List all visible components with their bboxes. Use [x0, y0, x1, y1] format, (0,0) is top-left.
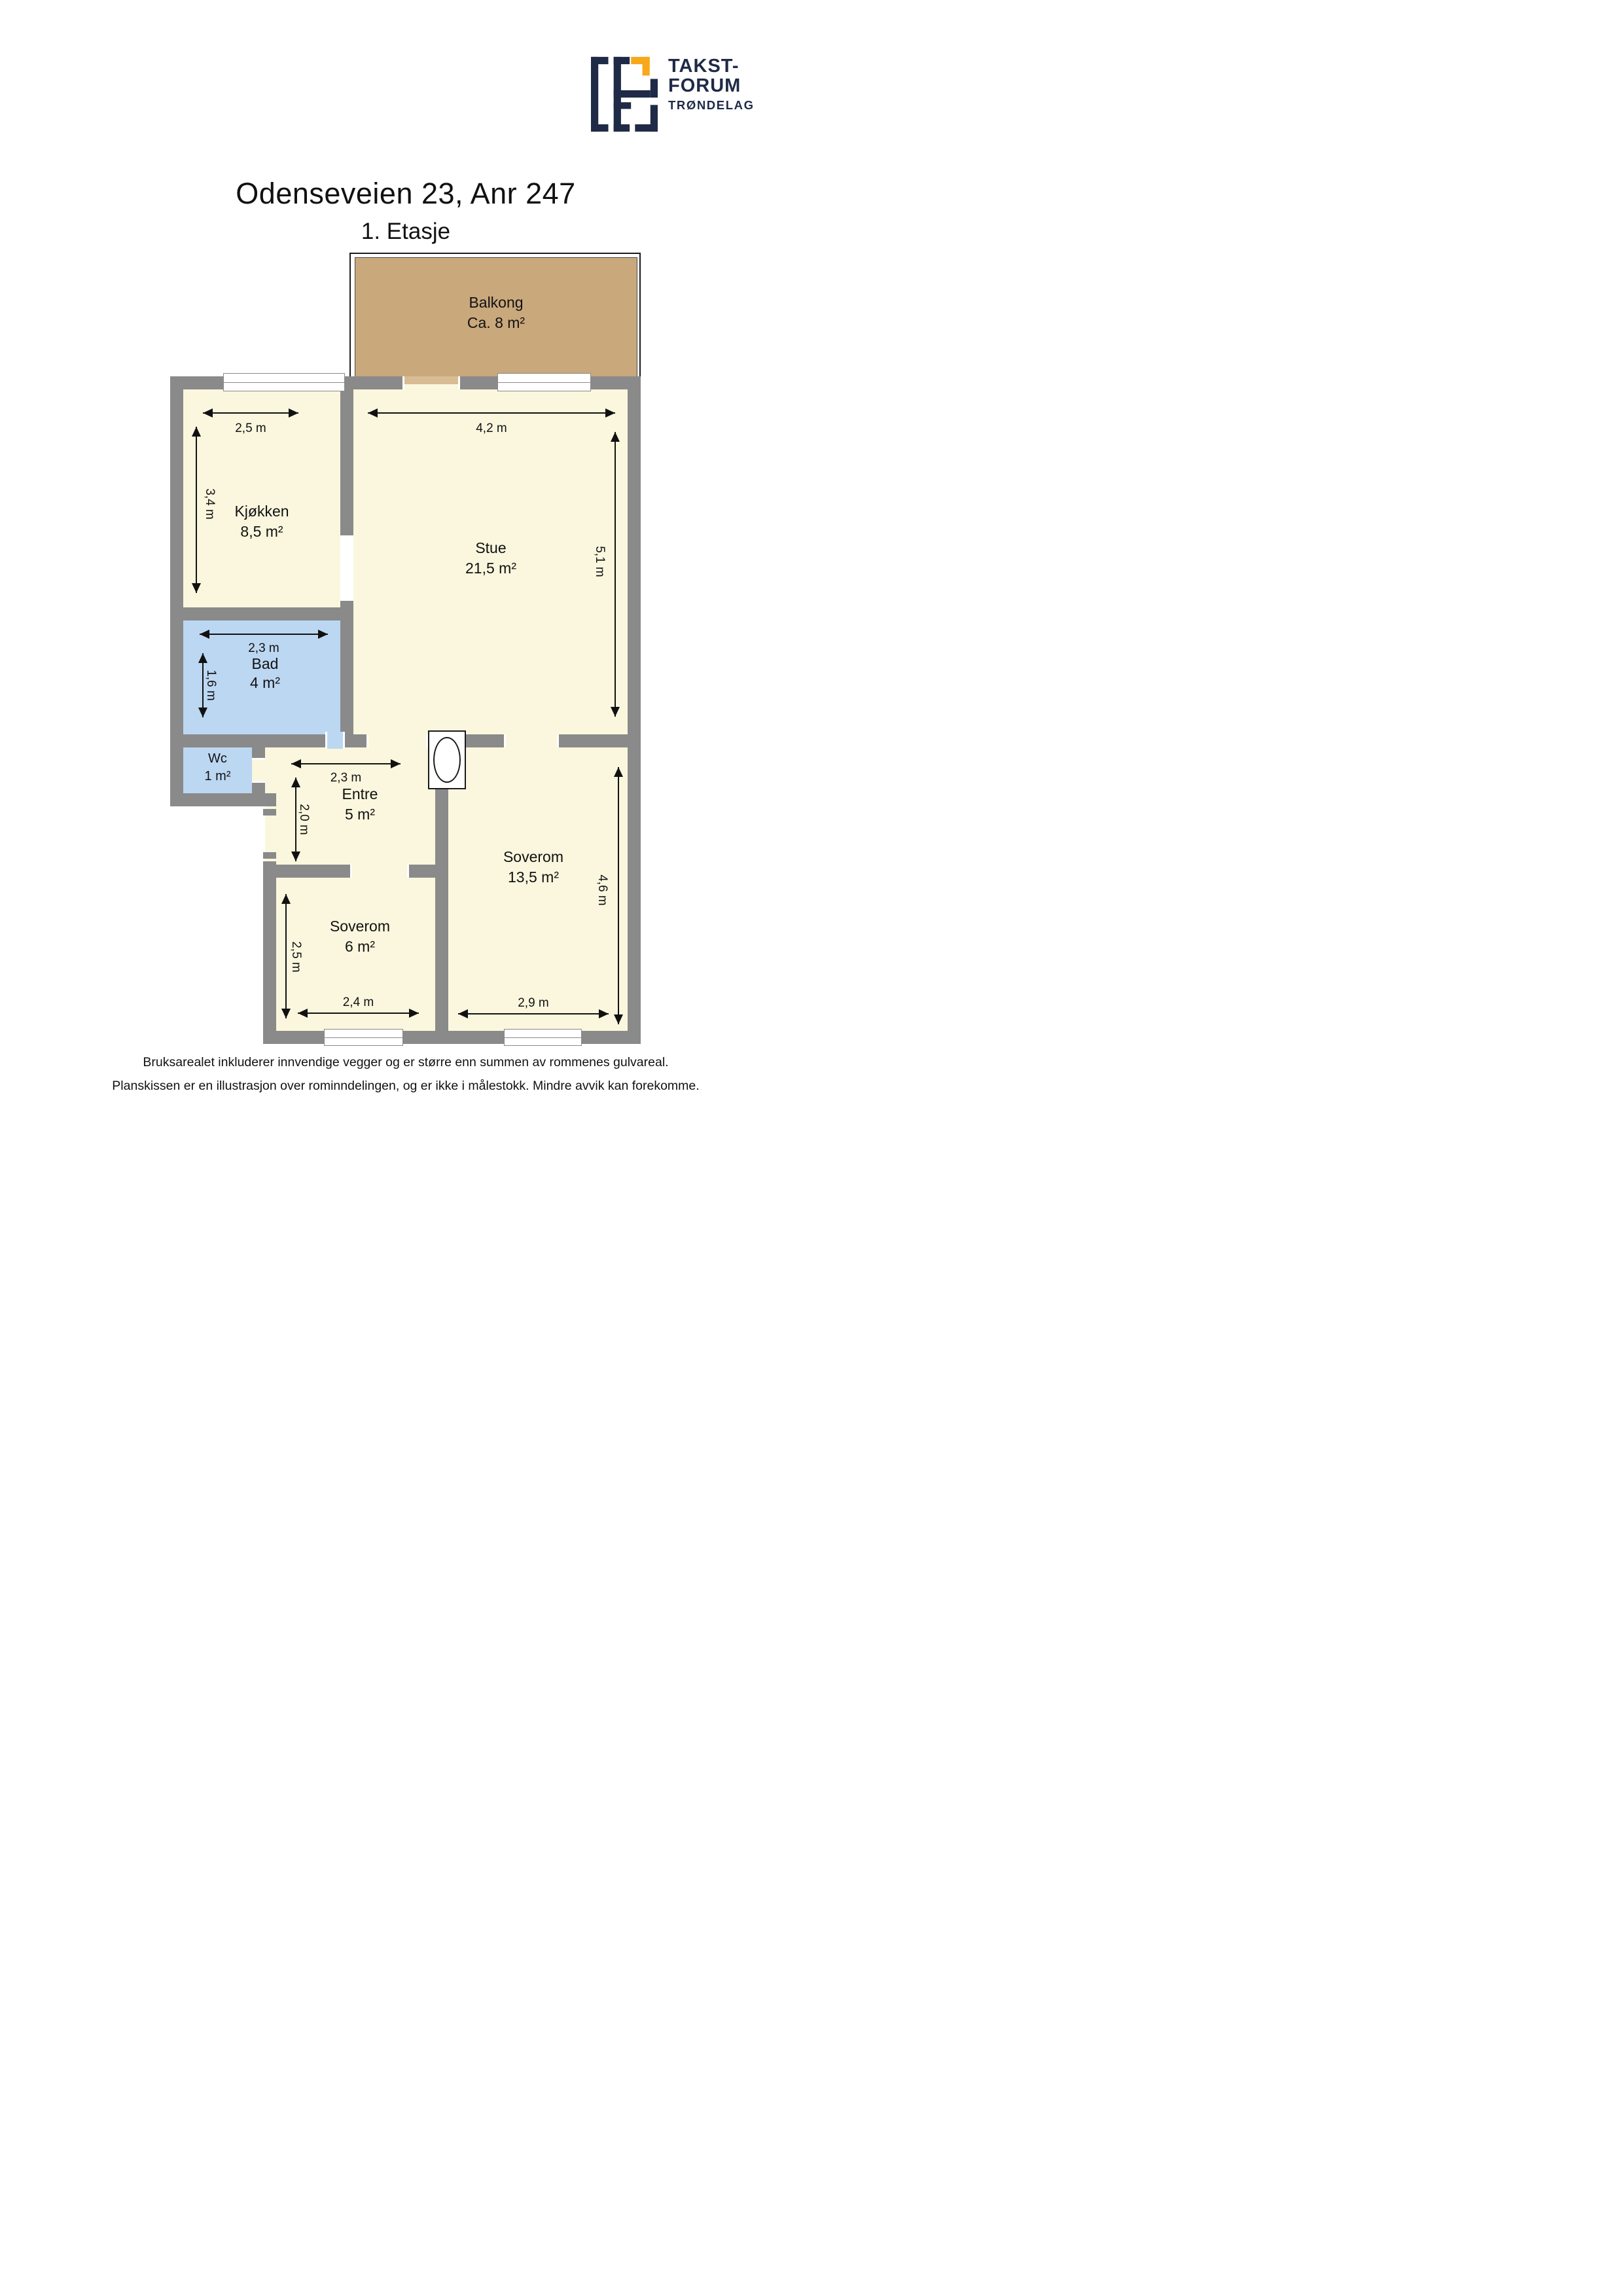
bad-width-arrow — [200, 634, 328, 635]
bad-width-label: 2,3 m — [200, 641, 328, 656]
soverom-liten-area: 6 m² — [301, 937, 419, 957]
entre-width-label: 2,3 m — [291, 771, 401, 785]
entre-width-arrow — [291, 763, 401, 764]
stue-height-arrow — [615, 432, 616, 717]
kjokken-width-arrow — [203, 412, 298, 414]
wall-kjokken-stue-upper — [340, 389, 353, 535]
door-stue-soverom — [504, 734, 559, 747]
window-stue — [497, 373, 591, 391]
takst-forum-logo-icon — [591, 56, 658, 132]
soverom-liten-width-label: 2,4 m — [298, 996, 419, 1010]
wc-label: Wc 1 m² — [183, 750, 252, 785]
sink-basin-icon — [433, 737, 461, 783]
floor-plan-page: TAKST- FORUM TRØNDELAG Odenseveien 23, A… — [0, 0, 811, 1148]
balkong-name: Balkong — [393, 293, 599, 313]
stue-area: 21,5 m² — [425, 558, 556, 579]
takst-forum-logo-text: TAKST- FORUM TRØNDELAG — [668, 56, 755, 112]
takst-forum-logo: TAKST- FORUM TRØNDELAG — [591, 56, 787, 141]
door-balkong — [402, 376, 460, 389]
wall-wc-right-lower — [252, 783, 265, 793]
wall-entre-soverom-a — [263, 865, 350, 878]
entre-label: Entre 5 m² — [308, 784, 412, 825]
logo-line-1: TAKST- — [668, 56, 755, 76]
wall-bad-bottom — [170, 734, 325, 747]
wall-stue-bottom-a — [353, 734, 366, 747]
stue-height-label: 5,1 m — [592, 541, 607, 583]
door-soverom-liten — [350, 865, 409, 878]
bad-name: Bad — [216, 655, 314, 673]
kjokken-name: Kjøkken — [196, 501, 327, 522]
wall-left-lower — [263, 861, 276, 1044]
sink-fixture-icon — [428, 730, 466, 789]
soverom-liten-name: Soverom — [301, 916, 419, 937]
soverom-stor-area: 13,5 m² — [461, 867, 605, 888]
wall-stue-bottom-c — [559, 734, 628, 747]
footer-note-1: Bruksarealet inkluderer innvendige vegge… — [0, 1055, 811, 1070]
door-bad — [325, 732, 345, 749]
wc-area: 1 m² — [183, 768, 252, 785]
window-soverom-liten — [324, 1029, 403, 1046]
door-wc — [252, 758, 265, 783]
wall-wc-bottom — [170, 793, 276, 806]
stue-name: Stue — [425, 538, 556, 558]
bad-label: Bad 4 m² — [216, 655, 314, 692]
soverom-liten-width-arrow — [298, 1013, 419, 1014]
door-kjokken — [340, 537, 353, 601]
kjokken-label: Kjøkken 8,5 m² — [196, 501, 327, 542]
wall-bottom — [263, 1031, 641, 1044]
wc-name: Wc — [183, 750, 252, 768]
wall-right — [628, 376, 641, 1044]
wall-entrance-stub-bottom — [263, 852, 276, 859]
kjokken-area: 8,5 m² — [196, 522, 327, 542]
wall-wc-right-upper — [252, 747, 265, 758]
soverom-stor-height-arrow — [618, 767, 619, 1024]
wall-kjokken-bad — [170, 607, 340, 620]
window-kjokken — [223, 373, 345, 391]
wall-kjokken-stue-lower — [340, 601, 353, 734]
footer-note-2: Planskissen er en illustrasjon over romi… — [0, 1079, 811, 1094]
balkong-label: Balkong Ca. 8 m² — [393, 293, 599, 333]
logo-line-2: FORUM — [668, 76, 755, 96]
logo-line-3: TRØNDELAG — [668, 99, 755, 111]
stue-label: Stue 21,5 m² — [425, 538, 556, 579]
soverom-liten-height-arrow — [285, 894, 287, 1018]
soverom-stor-width-arrow — [458, 1013, 609, 1014]
entre-area: 5 m² — [308, 804, 412, 825]
page-subtitle: 1. Etasje — [0, 219, 811, 245]
soverom-stor-name: Soverom — [461, 847, 605, 867]
stue-width-label: 4,2 m — [368, 422, 615, 436]
page-title: Odenseveien 23, Anr 247 — [0, 177, 811, 211]
window-soverom-stor — [504, 1029, 582, 1046]
wall-stue-bottom-b — [466, 734, 504, 747]
door-entre-stue — [366, 734, 428, 747]
wall-soverom-divider — [435, 788, 448, 1031]
soverom-stor-width-label: 2,9 m — [458, 996, 609, 1011]
balkong-area: Ca. 8 m² — [393, 313, 599, 333]
stue-width-arrow — [368, 412, 615, 414]
entre-name: Entre — [308, 784, 412, 804]
soverom-liten-label: Soverom 6 m² — [301, 916, 419, 957]
bad-area: 4 m² — [216, 673, 314, 692]
wall-bad-bottom-stub — [345, 734, 353, 747]
kjokken-width-label: 2,5 m — [203, 422, 298, 436]
wall-entrance-stub-top — [263, 809, 276, 816]
soverom-stor-label: Soverom 13,5 m² — [461, 847, 605, 888]
